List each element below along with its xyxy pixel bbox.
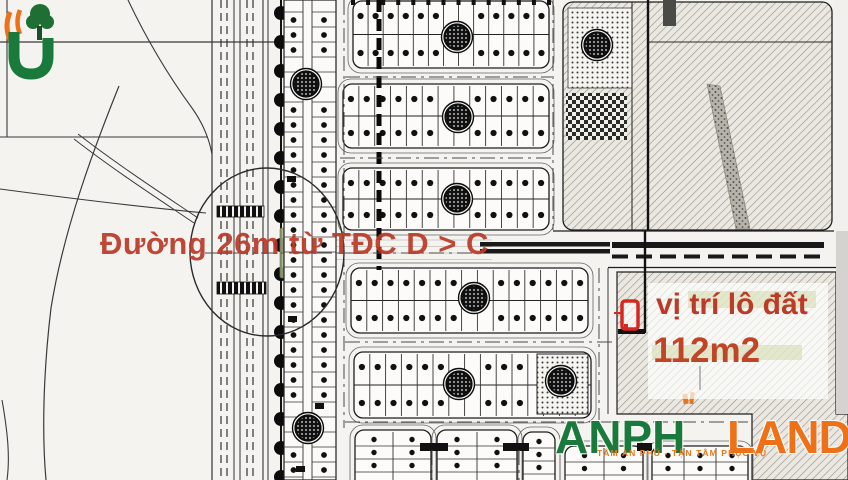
block-stamp-icon: [444, 369, 475, 400]
housing-block: [350, 425, 436, 480]
block-stamp-icon: [442, 184, 473, 215]
block-stamp-icon: [443, 102, 474, 133]
block-stamp-icon: [293, 413, 324, 444]
crosswalk-marking: [217, 206, 264, 217]
logo-u-icon: [0, 0, 58, 82]
logo-tagline: TÂM AN PHÚ - TẬN TÂM PHỤC VỤ: [597, 448, 767, 458]
housing-block: [432, 425, 522, 480]
block-stamp-icon: [442, 22, 473, 53]
crosswalk-marking: [217, 282, 266, 294]
site-plan-screenshot: Đường 26m từ TĐC D > C vị trí lô đất 112…: [0, 0, 848, 480]
block-stamp-icon: [546, 366, 577, 397]
plot-size-annotation: 112m2: [653, 331, 760, 371]
road-annotation: Đường 26m từ TĐC D > C: [100, 226, 489, 262]
plot-location-annotation: vị trí lô đất: [656, 288, 808, 322]
block-stamp-icon: [459, 283, 490, 314]
block-stamp-icon: [291, 69, 322, 100]
block-stamp-icon: [582, 30, 613, 61]
